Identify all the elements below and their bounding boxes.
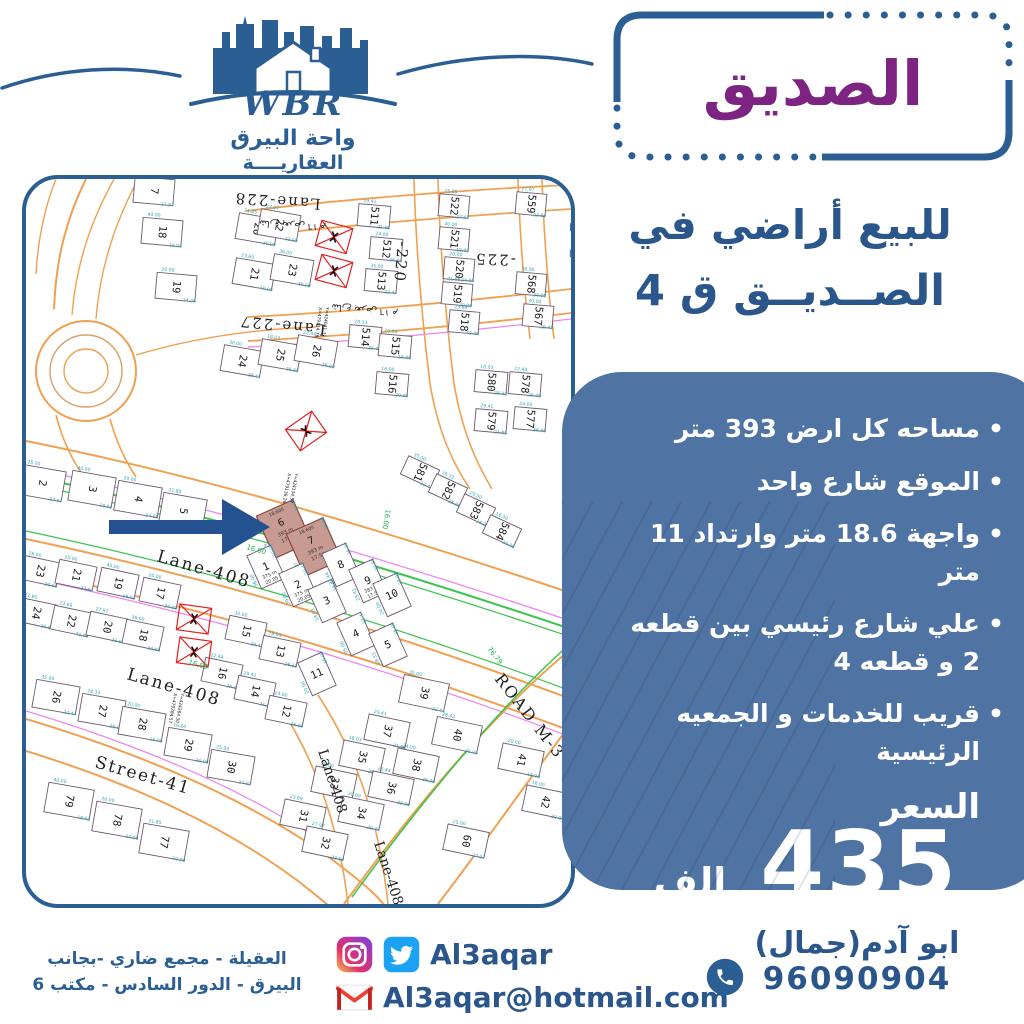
feature-item: علي شارع رئيسي بين قطعه 2 و قطعه 4 (622, 605, 1004, 680)
price-unit: الف (654, 860, 727, 914)
office-address: العقيلة - مجمع ضاري -بجانب البيرق - الدو… (14, 946, 320, 999)
agent-phone[interactable]: 96090904 (700, 961, 1014, 997)
svg-text:29.41: 29.41 (480, 403, 494, 410)
svg-text:24.00: 24.00 (375, 231, 389, 238)
svg-text:579: 579 (484, 411, 498, 431)
svg-text:20.00: 20.00 (384, 328, 398, 335)
svg-text:7: 7 (148, 187, 161, 194)
svg-text:24.00: 24.00 (183, 298, 197, 305)
svg-text:28: 28 (135, 717, 149, 732)
svg-text:26: 26 (49, 690, 63, 705)
price-row: الف 435 (562, 817, 1024, 914)
social-contact-block: Al3aqar Al3aqar@hotmail.com (336, 936, 736, 1022)
map-watermark: القطعه2 (566, 213, 571, 269)
svg-text:-225: -225 (474, 250, 516, 269)
agent-name: ابو آدم(جمال) (700, 926, 1014, 961)
svg-text:16.00: 16.00 (398, 354, 412, 361)
svg-text:19: 19 (169, 280, 182, 294)
svg-text:23: 23 (285, 263, 299, 278)
gmail-icon[interactable] (336, 979, 373, 1016)
listing-headline: للبيع أراضي في الصــديــق ق 4 (572, 194, 1008, 324)
features-panel: مساحه كل ارض 393 متر الموقع شارع واحد وا… (562, 372, 1024, 890)
svg-text:28.33: 28.33 (494, 390, 508, 397)
svg-text:27.97: 27.97 (161, 202, 175, 209)
cadastral-map: 725.0027.971840.0018.031920.0024.002021.… (22, 175, 575, 908)
agent-contact-block: ابو آدم(جمال) 96090904 (700, 926, 1014, 997)
svg-text:21: 21 (247, 267, 261, 282)
svg-text:514: 514 (358, 327, 372, 347)
address-line2: البيرق - الدور السادس - مكتب 6 (14, 972, 320, 998)
features-list: مساحه كل ارض 393 متر الموقع شارع واحد وا… (562, 372, 1024, 770)
svg-text:21.85: 21.85 (377, 224, 391, 231)
svg-text:516: 516 (385, 374, 399, 394)
svg-text:25: 25 (273, 348, 287, 363)
svg-text:20.00: 20.00 (449, 251, 463, 258)
svg-text:577: 577 (523, 409, 537, 429)
svg-text:578: 578 (518, 374, 532, 394)
feature-item: واجهة 18.6 متر وارتداد 11 متر (622, 515, 1004, 590)
svg-text:29.41: 29.41 (363, 198, 377, 205)
svg-text:30: 30 (224, 760, 238, 775)
svg-text:27: 27 (95, 704, 109, 719)
svg-text:520: 520 (452, 259, 466, 279)
svg-text:20.00: 20.00 (161, 267, 175, 274)
svg-text:79: 79 (62, 794, 76, 809)
svg-text:521: 521 (447, 229, 461, 249)
social-handle[interactable]: Al3aqar (430, 938, 552, 971)
svg-text:25.00: 25.00 (528, 392, 542, 399)
twitter-icon[interactable] (383, 936, 420, 973)
svg-text:511: 511 (367, 206, 381, 226)
address-line1: العقيلة - مجمع ضاري -بجانب (14, 946, 320, 972)
svg-text:29.41: 29.41 (540, 324, 554, 331)
svg-text:512: 512 (379, 239, 393, 259)
svg-text:23.69: 23.69 (454, 304, 468, 311)
svg-text:16.00: 16.00 (381, 509, 392, 530)
svg-text:شارع بعرض ١٦ م: شارع بعرض ١٦ م (331, 301, 398, 318)
svg-text:-220: -220 (390, 241, 412, 284)
svg-text:77: 77 (157, 835, 171, 850)
svg-text:28.33: 28.33 (354, 319, 368, 326)
svg-text:21.85: 21.85 (494, 429, 508, 436)
instagram-icon[interactable] (336, 936, 373, 973)
svg-text:23.69: 23.69 (533, 212, 547, 219)
svg-text:40.00: 40.00 (444, 221, 458, 228)
svg-text:580: 580 (484, 372, 498, 392)
svg-text:24.00: 24.00 (519, 401, 533, 408)
feature-item: قريب للخدمات و الجمعيه الرئيسية (622, 695, 1004, 770)
svg-text:568: 568 (524, 274, 538, 294)
district-title: الصديق (612, 10, 1014, 162)
svg-text:22.44: 22.44 (384, 289, 398, 296)
svg-text:36.00: 36.00 (521, 266, 535, 273)
feature-item: الموقع شارع واحد (622, 463, 1004, 501)
svg-text:40.00: 40.00 (147, 212, 161, 219)
svg-text:24: 24 (235, 354, 249, 369)
svg-text:30.00: 30.00 (533, 292, 547, 299)
headline-line1: للبيع أراضي في (572, 194, 1008, 258)
svg-text:21.85: 21.85 (447, 276, 461, 283)
phone-icon[interactable] (706, 958, 744, 996)
svg-text:515: 515 (388, 336, 402, 356)
email-address[interactable]: Al3aqar@hotmail.com (383, 981, 729, 1014)
cadastral-map-svg: 725.0027.971840.0018.031920.0024.002021.… (26, 179, 571, 904)
svg-text:26: 26 (309, 344, 323, 359)
svg-text:519: 519 (450, 284, 464, 304)
svg-text:522: 522 (447, 196, 461, 216)
brand-name-arabic: واحة البيرق (178, 126, 408, 151)
headline-line2: الصــديــق ق 4 (572, 258, 1008, 325)
svg-text:36.00: 36.00 (533, 427, 547, 434)
svg-text:16.00: 16.00 (381, 366, 395, 373)
svg-text:30.00: 30.00 (528, 298, 542, 305)
svg-text:78: 78 (110, 813, 124, 828)
feature-item: مساحه كل ارض 393 متر (622, 410, 1004, 448)
district-title-badge: الصديق (612, 10, 1014, 162)
svg-text:559: 559 (524, 194, 538, 214)
svg-text:22.44: 22.44 (514, 366, 528, 373)
svg-text:18.03: 18.03 (169, 243, 183, 250)
svg-text:18.03: 18.03 (480, 364, 494, 371)
company-logo: WBR واحة البيرق العقاريــــة (178, 2, 408, 174)
left-swoosh-decoration (0, 48, 182, 98)
price-amount: 435 (760, 817, 958, 914)
brand-type-arabic: العقاريــــة (178, 152, 408, 174)
svg-text:35.00: 35.00 (370, 263, 384, 270)
svg-text:567: 567 (531, 306, 545, 326)
svg-text:29: 29 (181, 738, 195, 753)
right-swoosh-decoration (396, 42, 594, 92)
svg-text:25.00: 25.00 (444, 188, 458, 195)
svg-text:20.00: 20.00 (395, 392, 409, 399)
svg-text:513: 513 (374, 271, 388, 291)
svg-text:40.00: 40.00 (466, 330, 480, 337)
svg-text:18: 18 (155, 225, 168, 239)
svg-text:27.97: 27.97 (456, 214, 470, 221)
svg-text:518: 518 (457, 312, 471, 332)
svg-text:27.97: 27.97 (521, 186, 535, 193)
